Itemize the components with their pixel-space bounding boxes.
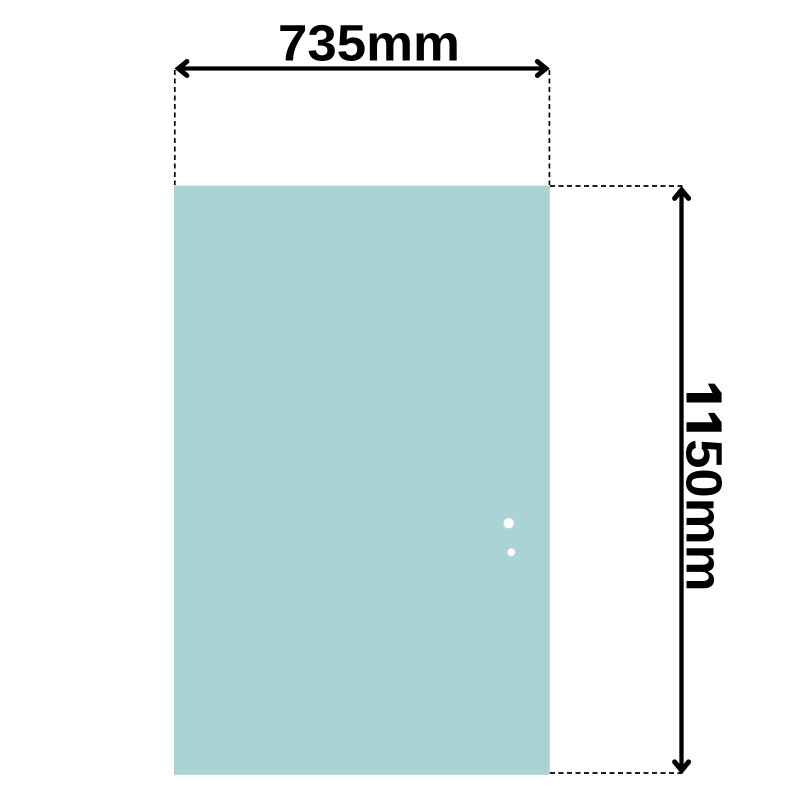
svg-text:50mm: 50mm xyxy=(676,439,733,591)
svg-text:735mm: 735mm xyxy=(278,14,460,71)
